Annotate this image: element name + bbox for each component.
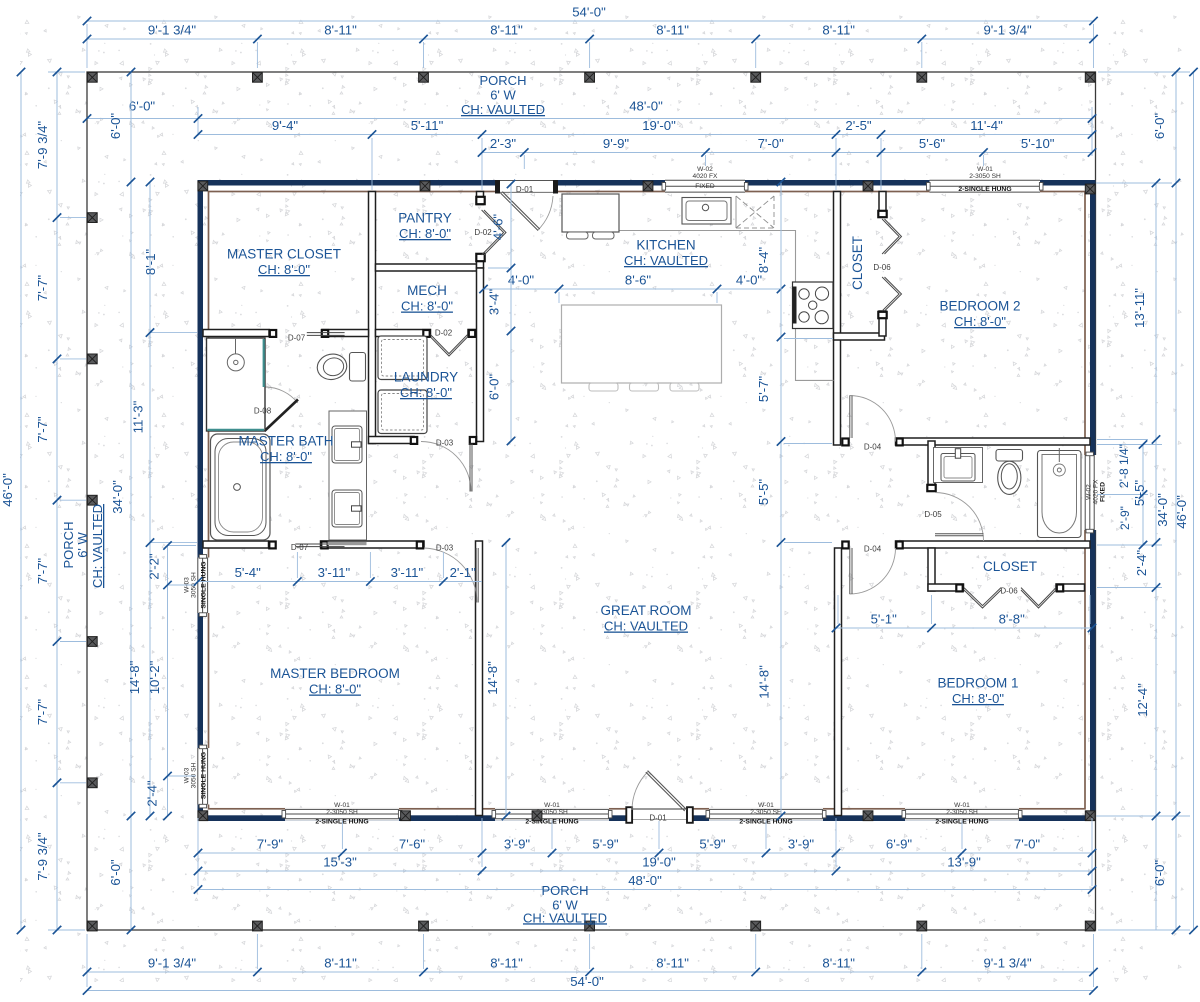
- svg-text:34'-0": 34'-0": [1155, 493, 1170, 527]
- svg-text:8'-6": 8'-6": [625, 273, 652, 288]
- svg-text:19'-0": 19'-0": [642, 118, 676, 133]
- svg-text:13'-9": 13'-9": [947, 855, 981, 870]
- svg-text:6' W: 6' W: [75, 531, 90, 557]
- svg-text:48'-0": 48'-0": [629, 99, 663, 114]
- svg-text:8'-1": 8'-1": [143, 249, 158, 276]
- svg-text:2'-8 1/4": 2'-8 1/4": [1117, 444, 1131, 488]
- svg-text:9'-1 3/4": 9'-1 3/4": [148, 956, 197, 971]
- svg-text:7'-7": 7'-7": [35, 275, 50, 302]
- svg-text:3'-11": 3'-11": [318, 565, 351, 580]
- svg-text:4020 FX: 4020 FX: [693, 173, 719, 180]
- svg-text:CH: 8'-0": CH: 8'-0": [399, 226, 451, 241]
- svg-text:LAUNDRY: LAUNDRY: [394, 370, 458, 385]
- svg-text:W-01: W-01: [977, 166, 993, 173]
- svg-text:5'-6": 5'-6": [919, 136, 946, 151]
- svg-text:9'-9": 9'-9": [603, 136, 630, 151]
- svg-text:PORCH: PORCH: [542, 883, 589, 898]
- svg-text:CH: 8'-0": CH: 8'-0": [400, 385, 452, 400]
- svg-text:46'-0": 46'-0": [0, 473, 15, 507]
- svg-text:CH: VAULTED: CH: VAULTED: [523, 910, 607, 925]
- svg-text:2-3050 SH: 2-3050 SH: [750, 809, 782, 816]
- svg-text:4020 FX: 4020 FX: [1092, 479, 1099, 505]
- svg-text:MASTER CLOSET: MASTER CLOSET: [227, 247, 341, 262]
- svg-text:5'-10": 5'-10": [1021, 136, 1055, 151]
- svg-text:6'-0": 6'-0": [1152, 860, 1167, 887]
- svg-text:7'-7": 7'-7": [35, 699, 50, 726]
- svg-text:CH: VAULTED: CH: VAULTED: [461, 102, 545, 117]
- svg-text:CH: VAULTED: CH: VAULTED: [624, 253, 708, 268]
- svg-text:11'-4": 11'-4": [970, 118, 1003, 133]
- svg-text:9'-1 3/4": 9'-1 3/4": [983, 23, 1032, 38]
- svg-text:2'-9": 2'-9": [1118, 506, 1132, 530]
- svg-text:7'-0": 7'-0": [1014, 837, 1041, 852]
- svg-text:13'-11": 13'-11": [1132, 288, 1147, 328]
- svg-text:PORCH: PORCH: [480, 73, 527, 88]
- svg-text:CH: 8'-0": CH: 8'-0": [954, 314, 1006, 329]
- svg-text:7'-9 3/4": 7'-9 3/4": [35, 121, 50, 170]
- svg-text:6'-0": 6'-0": [108, 859, 123, 886]
- svg-text:D-07: D-07: [291, 543, 309, 552]
- svg-text:PANTRY: PANTRY: [398, 211, 452, 226]
- svg-text:5'-11": 5'-11": [411, 118, 444, 133]
- svg-text:4'-6": 4'-6": [491, 214, 506, 241]
- svg-text:5'-9": 5'-9": [699, 837, 726, 852]
- svg-text:14'-8": 14'-8": [127, 660, 142, 694]
- svg-text:D-07: D-07: [288, 333, 306, 342]
- svg-text:6'-9": 6'-9": [886, 837, 913, 852]
- svg-text:CH: VAULTED: CH: VAULTED: [90, 504, 105, 588]
- svg-text:3'-9": 3'-9": [788, 837, 815, 852]
- svg-text:19'-0": 19'-0": [642, 855, 676, 870]
- svg-text:7'-7": 7'-7": [35, 416, 50, 443]
- svg-text:CH: 8'-0": CH: 8'-0": [309, 682, 361, 697]
- svg-text:MASTER BATH: MASTER BATH: [238, 434, 333, 449]
- svg-text:CH: 8'-0": CH: 8'-0": [952, 691, 1004, 706]
- svg-text:48'-0": 48'-0": [628, 873, 662, 888]
- svg-text:2-3050 SH: 2-3050 SH: [326, 809, 358, 816]
- svg-text:46'-0": 46'-0": [1174, 495, 1189, 529]
- svg-text:7'-6": 7'-6": [399, 837, 426, 852]
- svg-text:D-03: D-03: [436, 438, 454, 447]
- svg-text:11'-3": 11'-3": [131, 400, 146, 433]
- svg-text:2'-4": 2'-4": [145, 780, 160, 807]
- svg-text:3050 SH: 3050 SH: [190, 762, 197, 788]
- svg-text:5'-5": 5'-5": [756, 479, 771, 506]
- svg-text:CH: VAULTED: CH: VAULTED: [604, 619, 688, 634]
- svg-text:GREAT ROOM: GREAT ROOM: [600, 603, 691, 618]
- svg-text:2-SINGLE HUNG: 2-SINGLE HUNG: [958, 186, 1011, 193]
- svg-text:54'-0": 54'-0": [572, 5, 606, 20]
- svg-text:D-01: D-01: [516, 185, 534, 194]
- svg-text:8'-11": 8'-11": [324, 956, 357, 971]
- svg-text:6'-0": 6'-0": [108, 113, 123, 140]
- svg-text:6' W: 6' W: [490, 88, 516, 103]
- svg-text:14'-8": 14'-8": [485, 661, 500, 695]
- svg-text:8'-11": 8'-11": [490, 23, 523, 38]
- svg-text:2'-2": 2'-2": [147, 553, 162, 580]
- svg-text:D-06: D-06: [1000, 587, 1018, 596]
- svg-text:FIXED: FIXED: [695, 183, 715, 190]
- svg-text:D-06: D-06: [873, 263, 891, 272]
- svg-text:W-02: W-02: [697, 166, 713, 173]
- svg-text:2-3050 SH: 2-3050 SH: [969, 173, 1001, 180]
- svg-text:BEDROOM 2: BEDROOM 2: [939, 299, 1020, 314]
- svg-text:5'-7": 5'-7": [756, 376, 771, 403]
- svg-text:10'-2": 10'-2": [147, 660, 162, 694]
- svg-text:3'-4": 3'-4": [487, 289, 502, 316]
- svg-text:KITCHEN: KITCHEN: [636, 238, 695, 253]
- svg-text:9'-1 3/4": 9'-1 3/4": [983, 956, 1032, 971]
- svg-text:SINGLE HUNG: SINGLE HUNG: [200, 561, 207, 608]
- svg-text:5'-9": 5'-9": [592, 837, 619, 852]
- svg-text:7'-9 3/4": 7'-9 3/4": [35, 832, 50, 881]
- svg-text:FIXED: FIXED: [1100, 482, 1107, 502]
- svg-text:BEDROOM 1: BEDROOM 1: [937, 676, 1018, 691]
- svg-text:2-3050 SH: 2-3050 SH: [946, 809, 978, 816]
- svg-text:34'-0": 34'-0": [110, 480, 125, 514]
- svg-text:8'-11": 8'-11": [822, 23, 855, 38]
- svg-text:4'-0": 4'-0": [736, 273, 763, 288]
- svg-text:9'-1 3/4": 9'-1 3/4": [148, 23, 197, 38]
- svg-text:MECH: MECH: [407, 283, 447, 298]
- svg-text:8'-8": 8'-8": [999, 612, 1026, 627]
- svg-text:8'-11": 8'-11": [656, 956, 689, 971]
- svg-text:9'-4": 9'-4": [272, 118, 299, 133]
- svg-text:2'-4": 2'-4": [1134, 550, 1149, 577]
- svg-text:7'-0": 7'-0": [758, 136, 785, 151]
- svg-text:CLOSET: CLOSET: [850, 236, 865, 290]
- svg-text:D-03: D-03: [436, 543, 454, 552]
- svg-text:8'-11": 8'-11": [656, 23, 689, 38]
- svg-text:CH: 8'-0": CH: 8'-0": [258, 262, 310, 277]
- svg-text:6'-0": 6'-0": [129, 99, 156, 114]
- svg-text:2'-1": 2'-1": [450, 565, 477, 580]
- svg-text:D-08: D-08: [254, 407, 272, 416]
- svg-text:CH: 8'-0": CH: 8'-0": [260, 449, 312, 464]
- svg-text:SINGLE HUNG: SINGLE HUNG: [200, 752, 207, 799]
- svg-text:15'-3": 15'-3": [323, 855, 357, 870]
- svg-text:14'-8": 14'-8": [757, 665, 772, 699]
- svg-text:CH: 8'-0": CH: 8'-0": [401, 299, 453, 314]
- svg-text:CLOSET: CLOSET: [983, 559, 1037, 574]
- svg-text:D-01: D-01: [649, 813, 667, 822]
- svg-text:PORCH: PORCH: [61, 522, 76, 569]
- svg-text:8'-4": 8'-4": [756, 247, 771, 274]
- svg-text:3'-9": 3'-9": [504, 837, 531, 852]
- svg-text:7'-9": 7'-9": [257, 837, 284, 852]
- svg-text:5'-1": 5'-1": [871, 612, 898, 627]
- svg-text:7'-7": 7'-7": [35, 558, 50, 585]
- svg-text:D-02: D-02: [435, 328, 453, 337]
- svg-text:6'-0": 6'-0": [1152, 113, 1167, 140]
- svg-text:2'-5": 2'-5": [845, 118, 872, 133]
- svg-text:5'-4": 5'-4": [235, 565, 262, 580]
- svg-text:8'-11": 8'-11": [324, 23, 357, 38]
- svg-text:8'-11": 8'-11": [490, 956, 523, 971]
- svg-text:D-05: D-05: [924, 510, 942, 519]
- svg-text:MASTER BEDROOM: MASTER BEDROOM: [270, 666, 400, 681]
- svg-text:6'-0": 6'-0": [487, 374, 502, 401]
- svg-text:54'-0": 54'-0": [570, 974, 604, 989]
- svg-text:3'-11": 3'-11": [391, 565, 424, 580]
- svg-text:D-04: D-04: [864, 442, 882, 451]
- svg-text:4'-0": 4'-0": [508, 273, 535, 288]
- svg-text:5'-5": 5'-5": [1132, 480, 1147, 507]
- svg-text:8'-11": 8'-11": [822, 956, 855, 971]
- svg-text:2'-3": 2'-3": [490, 136, 517, 151]
- svg-text:D-04: D-04: [864, 544, 882, 553]
- svg-text:12'-4": 12'-4": [1135, 683, 1150, 717]
